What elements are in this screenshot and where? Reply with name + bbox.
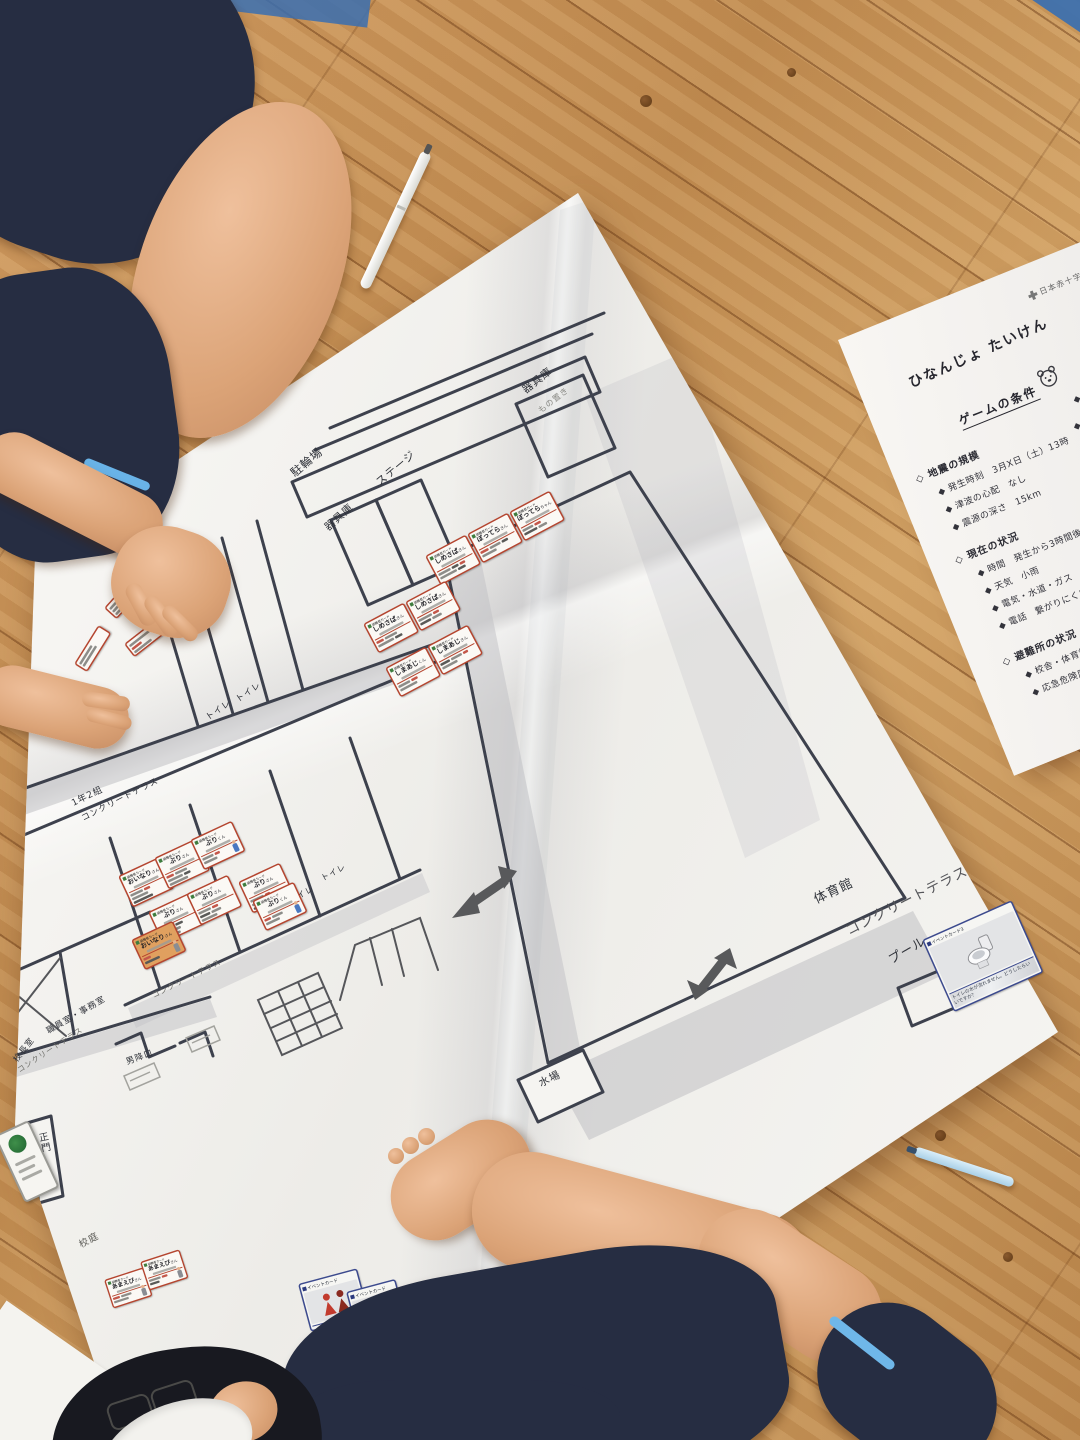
pencil-box	[124, 1063, 160, 1090]
name-suffix: さん	[459, 635, 468, 643]
name-suffix: ちゃん	[540, 500, 553, 510]
edge-bullet: ◆ 震源ま	[1071, 406, 1080, 433]
name-suffix: さん	[437, 591, 446, 599]
logo-text: 日本赤十字社	[1038, 267, 1080, 297]
cross-icon	[1027, 289, 1039, 301]
bear-face-icon	[1034, 363, 1063, 392]
child3-toe	[388, 1148, 404, 1164]
child3-toe	[402, 1137, 419, 1154]
name-suffix: さん	[499, 523, 508, 531]
edge-bullet: ◆	[1072, 394, 1080, 406]
room-wall	[222, 538, 268, 702]
handout-subtitle: ゲームの条件	[956, 382, 1041, 431]
name-suffix: さん	[134, 1277, 142, 1283]
swing-frame	[340, 918, 438, 1000]
photo-scene: 駐輪場 ステージ 器具庫 器具庫 もの置き トイレ トイレ 1年2組 コンクリー…	[0, 0, 1080, 1440]
name-suffix: さん	[395, 613, 404, 621]
name-suffix: さん	[170, 1259, 178, 1265]
terrace-band	[554, 911, 947, 1140]
toilet-icon	[955, 927, 1006, 975]
name-suffix: くん	[417, 657, 426, 665]
child3-body	[300, 1380, 620, 1440]
room-wall	[257, 521, 303, 690]
door-arrows	[452, 866, 737, 1000]
name-suffix: さん	[457, 545, 466, 553]
classroom-wall	[350, 738, 400, 879]
child3-toe	[418, 1128, 435, 1145]
office-wall	[0, 912, 150, 978]
handout-title: ひなんじょ たいけん	[905, 313, 1051, 393]
red-cross-logo: 日本赤十字社	[1027, 267, 1080, 302]
name-suffix: さん	[164, 931, 173, 938]
